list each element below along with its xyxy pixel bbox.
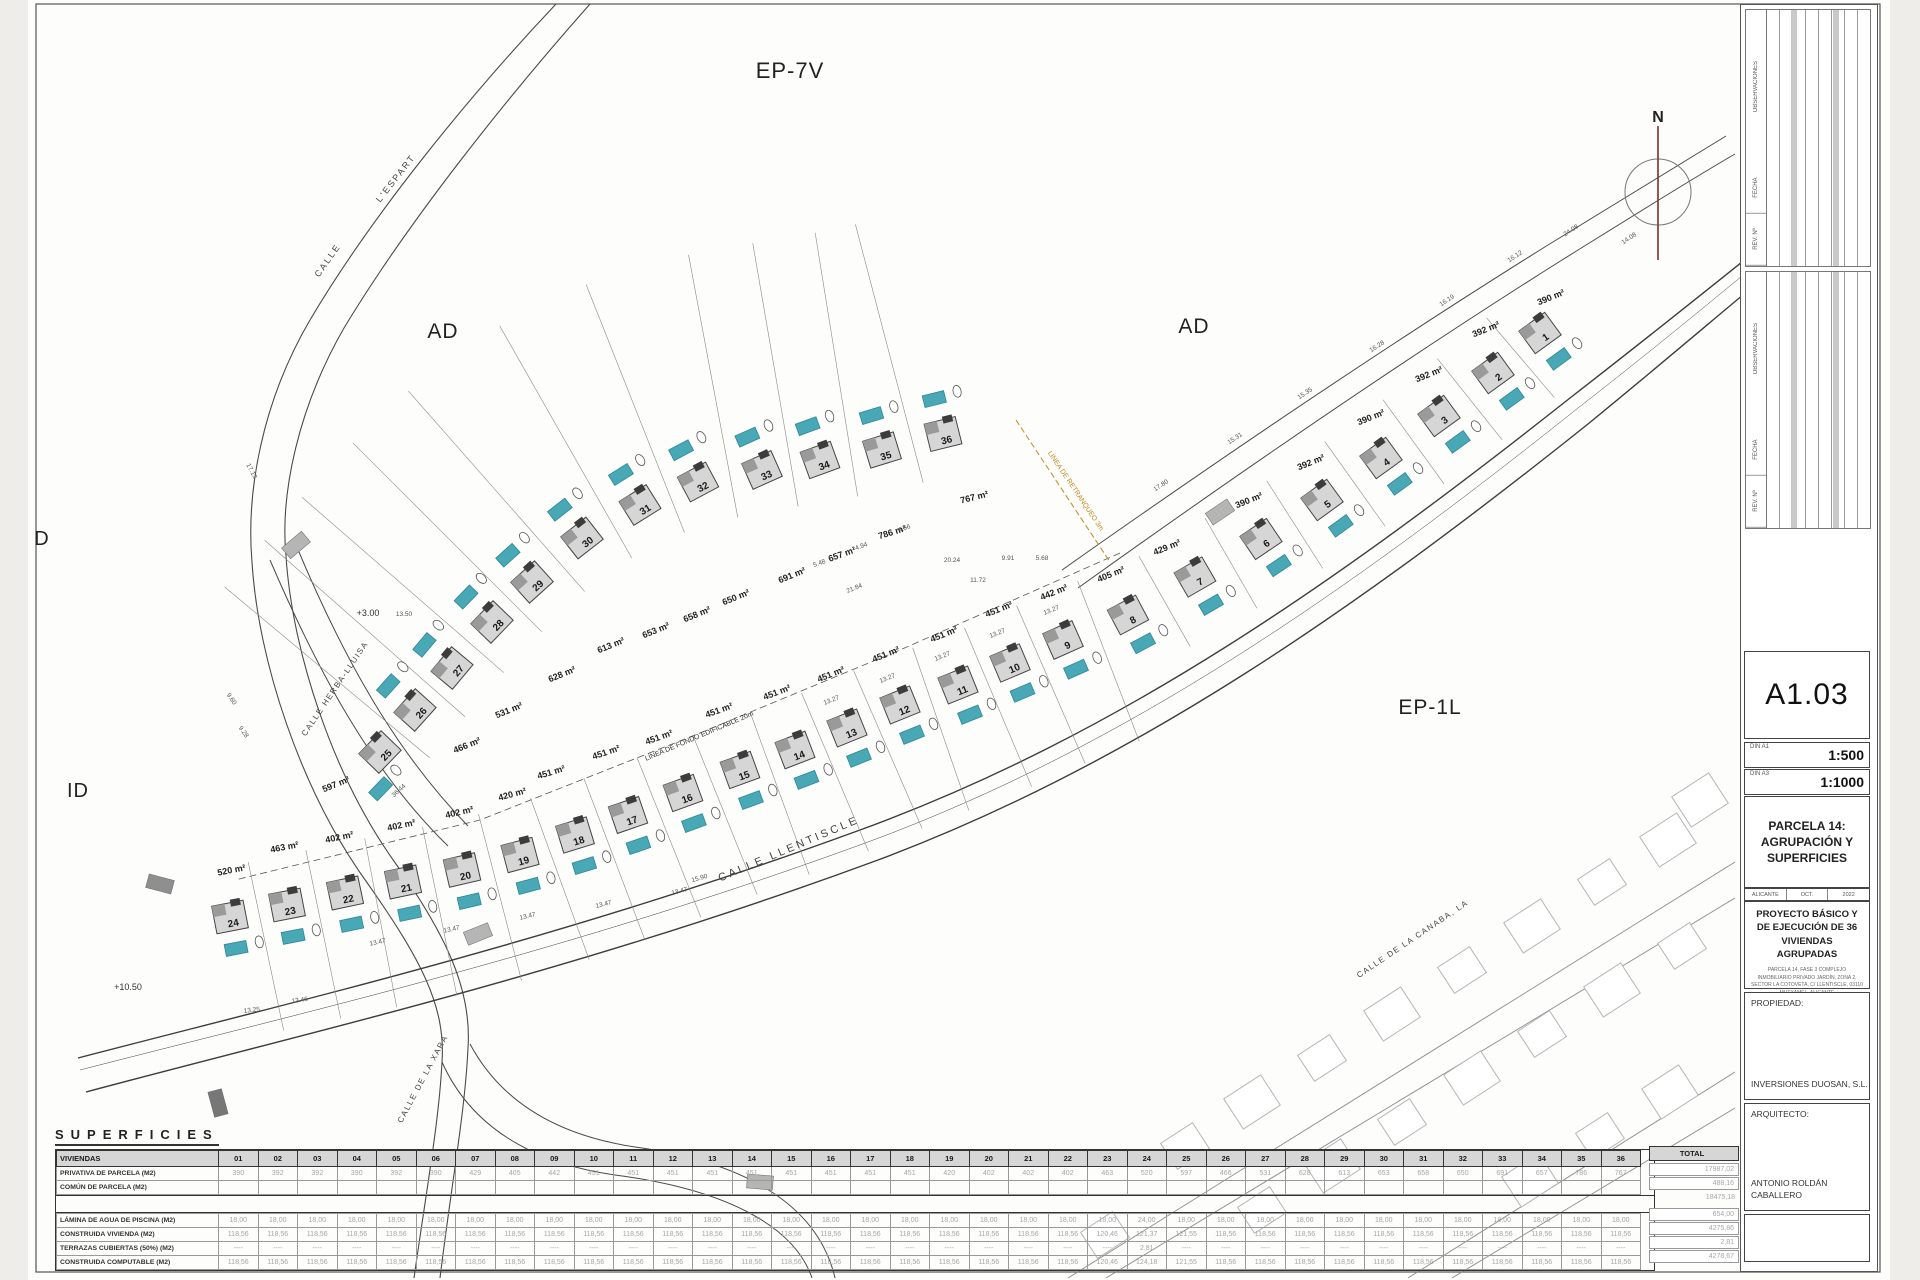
pool xyxy=(1445,431,1470,454)
pool xyxy=(369,777,393,801)
sheet-code: A1.03 xyxy=(1744,651,1870,739)
value-cell: 118,56 xyxy=(377,1228,417,1242)
house-8: 8 xyxy=(1106,587,1171,656)
value-cell: 18,00 xyxy=(614,1214,654,1228)
house-15: 15 xyxy=(719,744,779,811)
value-cell: 118,56 xyxy=(653,1256,693,1270)
plot-area-label: 451 m² xyxy=(704,701,734,720)
value-cell: ---- xyxy=(930,1242,970,1256)
value-cell: 124,18 xyxy=(1127,1256,1167,1270)
value-cell: 118,56 xyxy=(1364,1256,1404,1270)
house-36: 36 xyxy=(917,385,974,452)
value-cell xyxy=(1601,1181,1641,1195)
value-cell: 18,00 xyxy=(416,1214,456,1228)
existing-house-outline xyxy=(1224,1075,1281,1129)
value-cell: 18,00 xyxy=(772,1214,812,1228)
total-cell: 4278,67 xyxy=(1649,1250,1739,1263)
house-column-header: 02 xyxy=(258,1151,298,1167)
parking-marker xyxy=(986,697,998,711)
value-cell: ---- xyxy=(337,1242,377,1256)
value-cell: ---- xyxy=(535,1242,575,1256)
existing-house-outline xyxy=(1658,923,1707,970)
plot-area-label: 442 m² xyxy=(1039,582,1069,602)
plot-area-label: 767 m² xyxy=(959,489,989,506)
parking-marker xyxy=(762,418,774,432)
existing-house-outline xyxy=(1504,899,1561,953)
dimension-label: 16.19 xyxy=(1438,293,1456,308)
value-cell: 118,56 xyxy=(298,1228,338,1242)
pool xyxy=(1387,473,1412,496)
value-cell xyxy=(495,1181,535,1195)
value-cell xyxy=(1088,1181,1128,1195)
road-crossing xyxy=(146,874,175,894)
value-cell: 18,00 xyxy=(1562,1214,1602,1228)
value-cell: ---- xyxy=(890,1242,930,1256)
dimension-label: 13.25 xyxy=(243,1006,260,1015)
house-column-header: 22 xyxy=(1048,1151,1088,1167)
house-32: 32 xyxy=(663,430,729,502)
scale-a1-box: DIN A1 1:500 xyxy=(1744,742,1870,768)
plot-area-label: 628 m² xyxy=(547,664,577,684)
value-cell xyxy=(258,1181,298,1195)
value-cell xyxy=(1364,1181,1404,1195)
pool xyxy=(1198,594,1223,615)
value-cell xyxy=(693,1181,733,1195)
existing-house-outline xyxy=(1298,1035,1347,1082)
total-cell: 654,00 xyxy=(1649,1208,1739,1221)
existing-house-outline xyxy=(1584,963,1641,1017)
value-cell xyxy=(1048,1181,1088,1195)
dimension-label: 36.44 xyxy=(391,783,408,799)
value-cell: 118,56 xyxy=(377,1256,417,1270)
value-cell: 118,56 xyxy=(1522,1228,1562,1242)
house-column-header: 27 xyxy=(1246,1151,1286,1167)
value-cell: 657 xyxy=(1522,1167,1562,1181)
street-label: L'ESPART xyxy=(374,152,418,204)
house-column-header: 07 xyxy=(456,1151,496,1167)
value-cell: 118,56 xyxy=(1601,1228,1641,1242)
parking-marker xyxy=(517,531,531,545)
total-cell: 18475,18 xyxy=(1649,1192,1739,1205)
value-cell: ---- xyxy=(298,1242,338,1256)
dimension-label: 4.94 xyxy=(854,541,869,552)
plot-area-label: 463 m² xyxy=(269,839,299,854)
north-label: N xyxy=(1652,109,1664,126)
pool xyxy=(398,905,422,921)
house-34: 34 xyxy=(790,409,851,479)
value-cell: 18,00 xyxy=(258,1214,298,1228)
plot-area-label: 520 m² xyxy=(216,862,246,877)
pool xyxy=(547,498,572,521)
plot-divider xyxy=(478,814,521,981)
house-column-header: 14 xyxy=(732,1151,772,1167)
dimension-label: 13.27 xyxy=(934,650,952,663)
pool xyxy=(413,633,436,658)
plot-divider xyxy=(408,391,584,591)
plot-area-label: 451 m² xyxy=(762,682,792,702)
plot-area-label: 402 m² xyxy=(324,829,354,845)
value-cell: 121,37 xyxy=(1127,1228,1167,1242)
existing-house-outline xyxy=(1438,947,1487,994)
house-column-header: 17 xyxy=(851,1151,891,1167)
value-cell xyxy=(811,1181,851,1195)
house-column-header: 32 xyxy=(1443,1151,1483,1167)
dimension-label: 13.27 xyxy=(989,627,1007,640)
road-crossing xyxy=(1205,499,1234,525)
value-cell: 18,00 xyxy=(1483,1214,1523,1228)
value-cell: 118,56 xyxy=(1364,1228,1404,1242)
pool xyxy=(224,940,248,956)
value-cell: 118,56 xyxy=(258,1256,298,1270)
value-cell xyxy=(969,1181,1009,1195)
value-cell: ---- xyxy=(1246,1242,1286,1256)
value-cell: ---- xyxy=(653,1242,693,1256)
zone-label: D xyxy=(34,528,49,550)
house-column-header: 24 xyxy=(1127,1151,1167,1167)
value-cell: 18,00 xyxy=(1088,1214,1128,1228)
house-column-header: 33 xyxy=(1483,1151,1523,1167)
value-cell: ---- xyxy=(1088,1242,1128,1256)
value-cell: 118,56 xyxy=(219,1228,259,1242)
value-cell: 118,56 xyxy=(1285,1228,1325,1242)
house-12: 12 xyxy=(879,679,940,746)
value-cell: ---- xyxy=(1483,1242,1523,1256)
parking-marker xyxy=(1038,674,1050,688)
dimension-label: 9.28 xyxy=(237,725,250,740)
house-column-header: 18 xyxy=(890,1151,930,1167)
pool xyxy=(1010,683,1035,703)
value-cell: ---- xyxy=(456,1242,496,1256)
value-cell: 118,56 xyxy=(337,1256,377,1270)
value-cell: 118,56 xyxy=(456,1228,496,1242)
value-cell xyxy=(219,1181,259,1195)
plot-area-label: 597 m² xyxy=(321,774,351,794)
zone-label: EP-1L xyxy=(1398,696,1461,719)
retranqueo-label: LÍNEA DE RETRANQUEO 3m xyxy=(1046,449,1106,533)
house-column-header: 19 xyxy=(930,1151,970,1167)
plot-area-label: 451 m² xyxy=(816,664,846,684)
value-cell: 118,56 xyxy=(851,1228,891,1242)
value-cell: 18,00 xyxy=(337,1214,377,1228)
dimension-label: 20.24 xyxy=(944,557,961,564)
value-cell: ---- xyxy=(811,1242,851,1256)
year: 2022 xyxy=(1828,889,1869,900)
house-column-header: 16 xyxy=(811,1151,851,1167)
value-cell: 118,56 xyxy=(1325,1228,1365,1242)
house-23: 23 xyxy=(268,883,322,945)
value-cell xyxy=(1167,1181,1207,1195)
pool xyxy=(626,836,651,855)
value-cell: 118,56 xyxy=(1404,1228,1444,1242)
value-cell: 18,00 xyxy=(1009,1214,1049,1228)
total-cell: 17987,02 xyxy=(1649,1163,1739,1176)
value-cell: 402 xyxy=(1048,1167,1088,1181)
propiedad-label: PROPIEDAD: xyxy=(1751,998,1803,1008)
value-cell: 767 xyxy=(1601,1167,1641,1181)
road-upper-right xyxy=(1062,136,1735,588)
parking-marker xyxy=(487,887,497,900)
sheet-frame xyxy=(36,4,1880,1272)
dimension-label: 13.47 xyxy=(369,937,387,947)
value-cell: 118,56 xyxy=(851,1256,891,1270)
dimension-label: 15.35 xyxy=(1296,386,1314,401)
dimension-label: 13.50 xyxy=(396,611,413,618)
pool xyxy=(496,543,520,567)
value-cell xyxy=(930,1181,970,1195)
value-cell xyxy=(1325,1181,1365,1195)
plot-area-label: 420 m² xyxy=(497,786,527,803)
plot-divider xyxy=(423,827,457,996)
value-cell: 18,00 xyxy=(811,1214,851,1228)
plot-area-label: 402 m² xyxy=(444,804,474,820)
house-14: 14 xyxy=(774,724,835,791)
value-cell: 451 xyxy=(851,1167,891,1181)
value-cell: 18,00 xyxy=(890,1214,930,1228)
revision-label: FECHA xyxy=(1746,162,1766,214)
value-cell: ---- xyxy=(495,1242,535,1256)
value-cell: 118,56 xyxy=(1325,1256,1365,1270)
value-cell: 18,00 xyxy=(1404,1214,1444,1228)
parking-marker xyxy=(601,850,612,864)
plot-area-label: 390 m² xyxy=(1356,407,1386,427)
dimension-label: 17.80 xyxy=(1152,478,1170,493)
pool xyxy=(859,407,884,425)
plot-area-label: 691 m² xyxy=(777,565,807,585)
pool xyxy=(735,427,760,447)
value-cell xyxy=(1246,1181,1286,1195)
value-cell: 451 xyxy=(653,1167,693,1181)
street-label: CALLE DE LA XARA xyxy=(396,1033,450,1124)
value-cell: 118,56 xyxy=(732,1256,772,1270)
total-cell: TOTAL xyxy=(1649,1146,1739,1161)
value-cell: 18,00 xyxy=(1443,1214,1483,1228)
road-crossing xyxy=(208,1089,228,1118)
house-column-header: 28 xyxy=(1285,1151,1325,1167)
house-3: 3 xyxy=(1416,386,1484,456)
parking-marker xyxy=(1523,376,1537,390)
value-cell: 18,00 xyxy=(1364,1214,1404,1228)
value-cell: 118,56 xyxy=(772,1256,812,1270)
house-column-header: 04 xyxy=(337,1151,377,1167)
row-label: CONSTRUIDA VIVIENDA (M2) xyxy=(57,1228,219,1242)
arquitecto-box: ARQUITECTO: ANTONIO ROLDÁN CABALLERO xyxy=(1744,1103,1870,1211)
pool xyxy=(900,725,925,744)
value-cell: 118,56 xyxy=(614,1256,654,1270)
house-29: 29 xyxy=(491,531,563,604)
value-cell xyxy=(1562,1181,1602,1195)
house-column-header: 15 xyxy=(772,1151,812,1167)
house-31: 31 xyxy=(603,453,671,526)
parking-marker xyxy=(389,763,403,777)
linea-fondo-edificable xyxy=(235,553,1120,880)
plot-area-label: 531 m² xyxy=(494,700,524,720)
plot-area-label: 451 m² xyxy=(591,743,621,762)
value-cell: 18,00 xyxy=(219,1214,259,1228)
value-cell: 18,00 xyxy=(930,1214,970,1228)
value-cell: 118,56 xyxy=(930,1256,970,1270)
house-30: 30 xyxy=(542,486,612,559)
house-13: 13 xyxy=(826,702,887,769)
value-cell: 18,00 xyxy=(1048,1214,1088,1228)
superficies-title: SUPERFICIES xyxy=(55,1127,219,1146)
plot-area-label: 658 m² xyxy=(682,604,712,624)
viviendas-header: VIVIENDAS xyxy=(57,1151,219,1167)
value-cell: 118,56 xyxy=(574,1228,614,1242)
house-19: 19 xyxy=(500,831,557,896)
value-cell: 18,00 xyxy=(298,1214,338,1228)
value-cell: ---- xyxy=(1601,1242,1641,1256)
value-cell: 118,56 xyxy=(1048,1228,1088,1242)
value-cell: 118,56 xyxy=(930,1228,970,1242)
pool xyxy=(1328,515,1353,538)
propiedad-name: INVERSIONES DUOSAN, S.L. xyxy=(1751,1079,1868,1091)
value-cell: 18,00 xyxy=(535,1214,575,1228)
value-cell xyxy=(574,1181,614,1195)
dimension-label: 13.27 xyxy=(1043,604,1061,617)
value-cell: 420 xyxy=(930,1167,970,1181)
existing-house-outline xyxy=(1518,1011,1567,1058)
dimension-label: 15.31 xyxy=(1226,431,1244,446)
value-cell: 451 xyxy=(574,1167,614,1181)
value-cell: 18,00 xyxy=(851,1214,891,1228)
pool xyxy=(794,770,819,789)
value-cell xyxy=(535,1181,575,1195)
parking-marker xyxy=(428,900,438,913)
value-cell: 402 xyxy=(1009,1167,1049,1181)
pool xyxy=(682,814,707,833)
dimension-label: 13.47 xyxy=(443,924,461,934)
road-herba-lluisa xyxy=(270,545,468,846)
house-1: 1 xyxy=(1517,303,1585,373)
value-cell: ---- xyxy=(416,1242,456,1256)
parking-marker xyxy=(546,871,557,885)
value-cell: 118,56 xyxy=(574,1256,614,1270)
value-cell: 118,56 xyxy=(1443,1256,1483,1270)
house-column-header: 23 xyxy=(1088,1151,1128,1167)
pool xyxy=(454,585,478,609)
value-cell: 118,56 xyxy=(1246,1256,1286,1270)
plot-area-label: 451 m² xyxy=(536,763,566,781)
value-cell: 118,56 xyxy=(1522,1256,1562,1270)
value-cell xyxy=(772,1181,812,1195)
pool xyxy=(281,928,305,944)
value-cell: 118,56 xyxy=(1206,1228,1246,1242)
value-cell xyxy=(1206,1181,1246,1195)
value-cell: 118,56 xyxy=(969,1256,1009,1270)
value-cell: 118,56 xyxy=(258,1228,298,1242)
house-column-header: 08 xyxy=(495,1151,535,1167)
value-cell: 531 xyxy=(1246,1167,1286,1181)
pool xyxy=(739,791,764,810)
level-label: +3.00 xyxy=(357,608,380,618)
house-column-header: 21 xyxy=(1009,1151,1049,1167)
house-column-header: 09 xyxy=(535,1151,575,1167)
empty-box xyxy=(1744,1214,1870,1262)
house-column-header: 03 xyxy=(298,1151,338,1167)
dimension-label: 16.28 xyxy=(1368,339,1386,354)
value-cell: ---- xyxy=(969,1242,1009,1256)
parking-marker xyxy=(396,660,410,674)
revision-table-2: OBSERVACIONESFECHAREV. Nº xyxy=(1745,271,1871,529)
pool xyxy=(795,417,820,436)
plot-area-label: 650 m² xyxy=(721,587,751,607)
value-cell xyxy=(298,1181,338,1195)
value-cell: 118,56 xyxy=(890,1228,930,1242)
value-cell: 118,56 xyxy=(811,1228,851,1242)
value-cell: 118,56 xyxy=(535,1228,575,1242)
value-cell xyxy=(1009,1181,1049,1195)
pool xyxy=(516,877,540,894)
value-cell: 18,00 xyxy=(1206,1214,1246,1228)
row-label: LÁMINA DE AGUA DE PISCINA (M2) xyxy=(57,1214,219,1228)
house-33: 33 xyxy=(729,418,793,489)
parking-marker xyxy=(928,717,940,731)
plot-area-label: 392 m² xyxy=(1471,319,1501,339)
value-cell: 405 xyxy=(495,1167,535,1181)
dimension-label: 9.91 xyxy=(1002,555,1015,562)
house-column-header: 11 xyxy=(614,1151,654,1167)
dimension-label: 13.47 xyxy=(519,911,537,922)
plot-area-label: 405 m² xyxy=(1096,564,1126,584)
row-label: PRIVATIVA DE PARCELA (M2) xyxy=(57,1167,219,1181)
value-cell: 118,56 xyxy=(416,1256,456,1270)
dimension-label: 15.90 xyxy=(691,873,709,884)
superficies-table: SUPERFICIES VIVIENDAS0102030405060708091… xyxy=(55,1126,1655,1271)
value-cell: 451 xyxy=(811,1167,851,1181)
value-cell: 429 xyxy=(456,1167,496,1181)
parking-marker xyxy=(655,829,666,843)
parking-marker xyxy=(822,762,834,776)
value-cell: 118,56 xyxy=(1483,1228,1523,1242)
house-column-header: 36 xyxy=(1601,1151,1641,1167)
plot-divider xyxy=(500,326,632,558)
value-cell: 390 xyxy=(416,1167,456,1181)
value-cell xyxy=(732,1181,772,1195)
total-cell: 2,81 xyxy=(1649,1236,1739,1249)
parking-marker xyxy=(370,911,380,924)
value-cell xyxy=(1522,1181,1562,1195)
pool xyxy=(1064,659,1089,679)
value-cell: 2,81 xyxy=(1127,1242,1167,1256)
parking-marker xyxy=(1570,336,1584,350)
north-arrow xyxy=(1625,126,1691,260)
value-cell: 118,56 xyxy=(495,1228,535,1242)
dimension-label: 13.47 xyxy=(595,899,613,910)
parking-marker xyxy=(254,935,264,948)
value-cell: 118,56 xyxy=(811,1256,851,1270)
plot-area-label: 429 m² xyxy=(1152,537,1182,557)
value-cell: 118,56 xyxy=(1206,1256,1246,1270)
dimension-label: 14.08 xyxy=(1620,231,1638,246)
house-column-header: 01 xyxy=(219,1151,259,1167)
parking-marker xyxy=(695,430,708,444)
plot-area-label: 657 m² xyxy=(827,545,857,564)
value-cell xyxy=(377,1181,417,1195)
value-cell: 118,56 xyxy=(298,1256,338,1270)
zone-label: EP-7V xyxy=(756,58,825,83)
revision-table-1: OBSERVACIONESFECHAREV. Nº xyxy=(1745,9,1871,267)
value-cell: 18,00 xyxy=(495,1214,535,1228)
row-label: TERRAZAS CUBIERTAS (50%) (M2) xyxy=(57,1242,219,1256)
value-cell: ---- xyxy=(1364,1242,1404,1256)
house-22: 22 xyxy=(326,871,380,934)
value-cell: 120,46 xyxy=(1088,1228,1128,1242)
house-6: 6 xyxy=(1238,509,1305,579)
value-cell: 650 xyxy=(1443,1167,1483,1181)
value-cell: 118,56 xyxy=(732,1228,772,1242)
value-cell: ---- xyxy=(377,1242,417,1256)
house-21: 21 xyxy=(384,860,438,923)
